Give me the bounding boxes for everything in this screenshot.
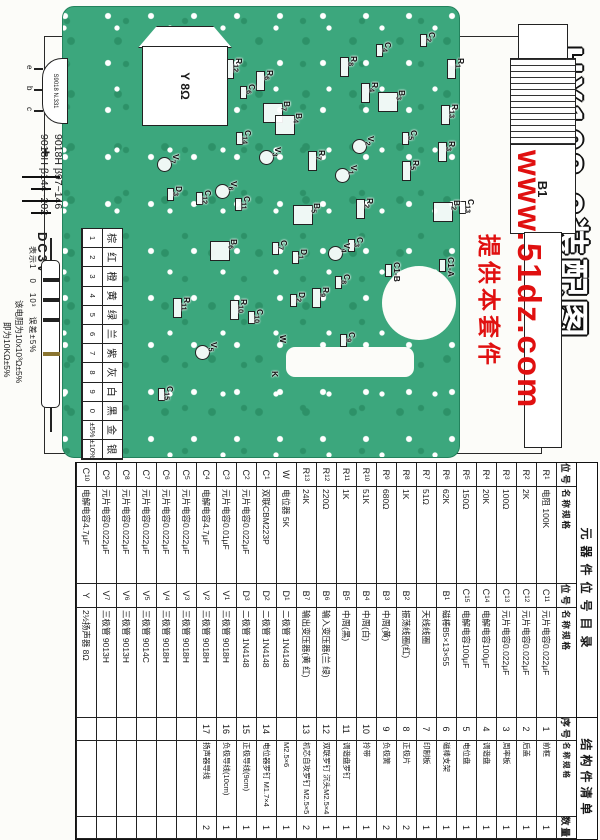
table-cell: 正极导线(9cm) [236, 741, 256, 817]
table-cell: 扬声器导线 [196, 741, 216, 817]
transistor-pin [34, 68, 43, 70]
antenna-end-cap [518, 24, 568, 60]
table-cell [176, 741, 196, 817]
table-cell: C1 [256, 463, 276, 487]
table-cell: 13 [296, 718, 316, 741]
pcb-label: D3 [171, 186, 184, 196]
table-cell: R12 [316, 463, 336, 487]
assembly-sheet: HX108-2装配图 B1 www.51dz.com 提供本套件 R12C6R6… [0, 0, 600, 840]
table-cell: 双联罗钉 沉头M2.5×4 [316, 741, 336, 817]
table-cell: C4 [196, 463, 216, 487]
transistor-pin [34, 89, 43, 91]
table-cell: 2 [376, 817, 396, 839]
table-cell: 元片电容0.022μF [116, 487, 136, 584]
table-cell: C12 [516, 584, 536, 608]
table-cell: 磁棒B5×13×55 [436, 608, 456, 718]
table-cell: 电位器罗钉 M1.7×4 [256, 741, 276, 817]
color-code-value-cell: 7 [82, 344, 102, 363]
table-cell: 1K [336, 487, 356, 584]
color-code-value-cell: 0 [82, 402, 102, 421]
pcb-part-shape [385, 264, 392, 277]
table-cell: 元片电容0.022μF [536, 608, 556, 718]
table-cell: B2 [396, 584, 416, 608]
table-cell: 2K [516, 487, 536, 584]
table-cell: 元片电容0.022μF [496, 608, 516, 718]
table-cell: R9 [376, 463, 396, 487]
table-cell: 7 [416, 718, 436, 741]
table-cell: C9 [96, 463, 116, 487]
resistor-band [43, 278, 60, 282]
table-cell: R10 [356, 463, 376, 487]
table-cell: C6 [156, 463, 176, 487]
tuning-hole-slot [286, 347, 414, 377]
table-cell: 磁棒支架 [436, 741, 456, 817]
table-cell: R13 [296, 463, 316, 487]
table-cell: 8 [396, 718, 416, 741]
color-code-value-cell: ±10% [82, 440, 102, 459]
table-header-cell: 名称规格 [556, 741, 576, 817]
table-cell: 9 [376, 718, 396, 741]
table-cell: 1 [336, 817, 356, 839]
speaker-symbol: Y 8Ω [142, 46, 228, 126]
table-cell: C2 [236, 463, 256, 487]
color-code-value-cell: 9 [82, 383, 102, 402]
table-cell: 2 [196, 817, 216, 839]
table-cell: R6 [436, 463, 456, 487]
table-cell [156, 817, 176, 839]
table-cell: 62K [436, 487, 456, 584]
pcb-label: R1 [453, 58, 466, 68]
table-header-cell: 位号 [556, 584, 576, 608]
pcb-label: D2 [294, 292, 307, 302]
resistor-band [43, 298, 60, 302]
table-cell: 1 [276, 817, 296, 839]
color-code-color-cell: 兰 [102, 325, 122, 344]
pcb-label: C15 [162, 386, 175, 400]
table-cell: 1 [316, 817, 336, 839]
pcb-label: R6 [262, 70, 275, 80]
pcb-label: R9 [318, 287, 331, 297]
battery-plate-short [31, 212, 51, 214]
table-cell: 周率板 [496, 741, 516, 817]
table-cell: C15 [456, 584, 476, 608]
table-cell: V4 [156, 584, 176, 608]
table-cell: 电位器 5K [276, 487, 296, 584]
color-code-value-cell: 2 [82, 248, 102, 267]
table-cell [156, 718, 176, 741]
pcb-label: B2 [449, 200, 462, 210]
pcb-label: C1-B [392, 262, 402, 282]
table-cell: 6 [436, 718, 456, 741]
table-cell: 电解电容100μF [456, 608, 476, 718]
table-cell: 中周(黄) [376, 608, 396, 718]
table-cell [116, 817, 136, 839]
structure-table-title: 结构件清单 [575, 717, 598, 840]
table-cell: 680Ω [376, 487, 396, 584]
table-cell: C10 [76, 463, 96, 487]
table-cell: 振荡线圈(红) [396, 608, 416, 718]
battery-plate-long [22, 200, 60, 202]
table-cell: R2 [516, 463, 536, 487]
table-cell: V3 [176, 584, 196, 608]
pcb-label: K [270, 371, 280, 377]
example-resistor-body [41, 260, 60, 408]
pcb-label: V2 [363, 136, 376, 146]
table-cell [116, 718, 136, 741]
table-cell: 2 [516, 718, 536, 741]
table-cell: 1 [216, 817, 236, 839]
pin-label-e: e [25, 65, 34, 69]
table-cell [76, 817, 96, 839]
color-code-color-cell: 银 [102, 440, 122, 459]
color-code-color-cell: 黄 [102, 287, 122, 306]
pcb-label: V1 [346, 165, 359, 175]
table-cell [76, 741, 96, 817]
table-cell: 电解电容4.7μF [196, 487, 216, 584]
pcb-label: R11 [179, 297, 192, 311]
table-cell: 元片电容0.022μF [176, 487, 196, 584]
table-cell: 中周(黑) [336, 608, 356, 718]
table-cell: 24K [296, 487, 316, 584]
table-cell: 后盖 [516, 741, 536, 817]
pcb-label: R13 [447, 104, 460, 118]
table-cell: 150Ω [456, 487, 476, 584]
table-cell: C13 [496, 584, 516, 608]
color-code-color-cell: 灰 [102, 363, 122, 382]
color-code-value-cell: 3 [82, 267, 102, 286]
table-cell: 电位盘 [456, 741, 476, 817]
table-cell: 电解电容100μF [476, 608, 496, 718]
table-cell: 元片电容0.022μF [136, 487, 156, 584]
table-cell: C7 [136, 463, 156, 487]
transistor-package-icon: S9018 N.331 [42, 58, 68, 124]
table-cell: C11 [536, 584, 556, 608]
table-cell: B4 [356, 584, 376, 608]
table-cell: 元片电容0.022μF [96, 487, 116, 584]
pcb-label: C13 [463, 199, 476, 213]
table-cell: V5 [136, 584, 156, 608]
table-header-cell: 位号 [556, 463, 576, 487]
table-cell: 三极管 9018H [216, 608, 236, 718]
pcb-label: C11 [239, 196, 252, 210]
table-cell: 1 [536, 718, 556, 741]
pcb-label: R12 [231, 58, 244, 72]
table-cell: M2.5×6 [276, 741, 296, 817]
table-cell: B6 [316, 584, 336, 608]
pcb-label: C1-A [446, 257, 456, 277]
table-cell: V6 [116, 584, 136, 608]
table-cell: 二极管 1N4148 [276, 608, 296, 718]
pcb-label: C2 [424, 32, 437, 42]
table-cell: V1 [216, 584, 236, 608]
pcb-label: C8 [339, 274, 352, 284]
table-cell: D1 [276, 584, 296, 608]
color-code-color-cell: 棕 [102, 229, 122, 248]
pcb-label: R3 [444, 141, 457, 151]
pcb-label: D1 [296, 249, 309, 259]
table-cell: 负极导线(10cm) [216, 741, 236, 817]
table-cell: R4 [476, 463, 496, 487]
parts-table: 位号名称规格位号名称规格序号名称规格数量R1电阻 100KC11元片电容0.02… [75, 462, 577, 840]
battery-plate-short [31, 188, 51, 190]
table-cell [96, 718, 116, 741]
table-cell: 二极管 1N4148 [256, 608, 276, 718]
pin-label-b: b [25, 86, 34, 90]
table-cell: 10 [356, 718, 376, 741]
table-cell: 51Ω [416, 487, 436, 584]
pcb-label: V5 [206, 342, 219, 352]
table-cell: 调谐盘罗钉 [336, 741, 356, 817]
table-cell [96, 741, 116, 817]
pcb-label: C4 [380, 42, 393, 52]
table-cell: D2 [256, 584, 276, 608]
watermark-slogan: 提供本套件 [474, 234, 508, 369]
pcb-part-shape [439, 259, 446, 272]
table-cell: 1 [536, 817, 556, 839]
color-code-value-cell: 4 [82, 287, 102, 306]
table-cell: B3 [376, 584, 396, 608]
table-cell: 电阻 100K [536, 487, 556, 584]
table-cell: R5 [456, 463, 476, 487]
table-cell: 15 [236, 718, 256, 741]
color-code-value-cell: 1 [82, 229, 102, 248]
color-code-value-cell: 5 [82, 306, 102, 325]
table-cell: C3 [216, 463, 236, 487]
color-code-value-cell: 6 [82, 325, 102, 344]
table-cell: B7 [296, 584, 316, 608]
color-code-color-cell: 橙 [102, 267, 122, 286]
rotated-sheet: HX108-2装配图 B1 www.51dz.com 提供本套件 R12C6R6… [0, 0, 600, 840]
table-cell: 二极管 1N4148 [236, 608, 256, 718]
table-cell: 100Ω [496, 487, 516, 584]
table-cell: B1 [436, 584, 456, 608]
table-cell: 220Ω [316, 487, 336, 584]
table-cell: 4 [476, 718, 496, 741]
table-cell: 中周(白) [356, 608, 376, 718]
table-cell: 3 [496, 718, 516, 741]
table-cell [76, 718, 96, 741]
pcb-label: W [278, 335, 288, 343]
table-cell: C8 [116, 463, 136, 487]
component-table-title: 元器件位号目录 [575, 462, 598, 719]
table-cell: 电解电容4.7μF [76, 487, 96, 584]
color-code-color-cell: 紫 [102, 344, 122, 363]
pcb-label: R4 [367, 82, 380, 92]
pcb-label: R7 [314, 150, 327, 160]
table-cell: 机芯自攻罗钉 M2.5×5 [296, 741, 316, 817]
color-code-value-cell: 8 [82, 363, 102, 382]
table-cell: 调谐盘 [476, 741, 496, 817]
table-cell [156, 741, 176, 817]
pcb-label: R2 [362, 198, 375, 208]
table-cell: R7 [416, 463, 436, 487]
table-cell [136, 718, 156, 741]
color-code-color-cell: 红 [102, 248, 122, 267]
color-code-color-cell: 黑 [102, 402, 122, 421]
table-cell: 三极管 9018H [176, 608, 196, 718]
pcb-label: B4 [291, 113, 304, 123]
table-cell: 2½扬声器 8Ω [76, 608, 96, 718]
table-header-cell: 名称规格 [556, 608, 576, 718]
table-cell: 2 [396, 817, 416, 839]
table-cell: 双联CBM223P [256, 487, 276, 584]
antenna-coil-hatch [510, 58, 576, 146]
pcb-label: C5 [406, 130, 419, 140]
table-cell: 印制板 [416, 741, 436, 817]
table-cell: R8 [396, 463, 416, 487]
table-header-cell: 数量 [556, 817, 576, 839]
table-cell: 前框 [536, 741, 556, 817]
table-cell [96, 817, 116, 839]
pcb-label: B7 [279, 101, 292, 111]
table-cell: 17 [196, 718, 216, 741]
pcb-label: B5 [309, 203, 322, 213]
table-cell: B5 [336, 584, 356, 608]
pin-label-c: c [25, 107, 34, 111]
table-cell: R3 [496, 463, 516, 487]
table-cell: 三极管 9018H [196, 608, 216, 718]
color-code-color-cell: 白 [102, 383, 122, 402]
pcb-label: B3 [394, 90, 407, 100]
table-cell: 12 [316, 718, 336, 741]
table-cell: 1 [416, 817, 436, 839]
pcb-label: C10 [252, 309, 265, 323]
pcb-label: R5 [408, 160, 421, 170]
table-cell [176, 718, 196, 741]
pcb-label: C12 [200, 190, 213, 204]
table-cell: 2 [296, 817, 316, 839]
resistor-band [43, 318, 60, 322]
table-cell: 输入变压器(兰 绿) [316, 608, 336, 718]
table-cell: R1 [536, 463, 556, 487]
table-cell: Y [76, 584, 96, 608]
table-cell: 51K [356, 487, 376, 584]
table-cell: C14 [476, 584, 496, 608]
table-cell: 1 [236, 817, 256, 839]
table-cell [136, 741, 156, 817]
color-code-value-cell: ±5% [82, 421, 102, 440]
color-code-color-cell: 绿 [102, 306, 122, 325]
example-note-2: 即为10KΩ±5% [1, 322, 13, 377]
pcb-label: C6 [244, 84, 257, 94]
table-cell: 1 [516, 817, 536, 839]
pcb-label: R10 [236, 299, 249, 313]
table-cell: 三极管 9013H [96, 608, 116, 718]
table-cell: 负极簧 [376, 741, 396, 817]
table-cell: V7 [96, 584, 116, 608]
table-cell: 5 [456, 718, 476, 741]
table-cell: V2 [196, 584, 216, 608]
table-cell: 1K [396, 487, 416, 584]
color-code-color-cell: 金 [102, 421, 122, 440]
table-cell [176, 817, 196, 839]
table-cell: 1 [456, 817, 476, 839]
table-cell: R11 [336, 463, 356, 487]
table-cell [416, 584, 436, 608]
table-cell: 1 [256, 817, 276, 839]
pcb-label: V4 [339, 243, 352, 253]
table-cell: 1 [476, 817, 496, 839]
table-cell: 1 [496, 817, 516, 839]
pcb-label: V3 [270, 147, 283, 157]
table-cell: 1 [356, 817, 376, 839]
example-annotations: 表示1 0 10³ 误差±5% [27, 246, 38, 353]
table-cell: 三极管 9018H [156, 608, 176, 718]
table-cell: 14 [256, 718, 276, 741]
table-cell: 元片电容0.022μF [516, 608, 536, 718]
table-cell: 11 [336, 718, 356, 741]
table-cell: W [276, 463, 296, 487]
table-cell: 元片电容0.01μF [216, 487, 236, 584]
table-cell: 输出变压器(黄 红) [296, 608, 316, 718]
transistor-pin [34, 110, 43, 112]
table-cell: 1 [436, 817, 456, 839]
table-cell: 正极片 [396, 741, 416, 817]
table-cell [116, 741, 136, 817]
pcb-label: C14 [240, 130, 253, 144]
pcb-label: C9 [344, 332, 357, 342]
pcb-label: V6 [226, 181, 239, 191]
pcb-label: C3 [352, 237, 365, 247]
table-cell [136, 817, 156, 839]
table-cell: 元片电容0.022μF [236, 487, 256, 584]
battery-plate-long [22, 176, 60, 178]
table-header-cell: 名称规格 [556, 487, 576, 584]
table-cell: 天线线圈 [416, 608, 436, 718]
table-header-cell: 序号 [556, 718, 576, 741]
pcb-label: C7 [276, 240, 289, 250]
table-cell: 元片电容0.022μF [156, 487, 176, 584]
table-cell: D3 [236, 584, 256, 608]
table-cell [276, 718, 296, 741]
watermark-url: www.51dz.com [510, 150, 548, 409]
table-cell: 三极管 9014C [136, 608, 156, 718]
table-cell: 16 [216, 718, 236, 741]
pcb-label: B6 [226, 239, 239, 249]
pcb-label: V7 [168, 154, 181, 164]
table-cell: 三极管 9013H [116, 608, 136, 718]
table-cell: 20K [476, 487, 496, 584]
table-cell: C5 [176, 463, 196, 487]
example-note-1: 该电阻为10x10³Ω±5% [13, 300, 25, 383]
resistor-band-gold [43, 352, 60, 356]
color-code-table: 棕红橙黄绿兰紫灰白黑金银1234567890±5%±10% [81, 228, 123, 460]
table-cell: 拎带 [356, 741, 376, 817]
pcb-label: R8 [346, 56, 359, 66]
